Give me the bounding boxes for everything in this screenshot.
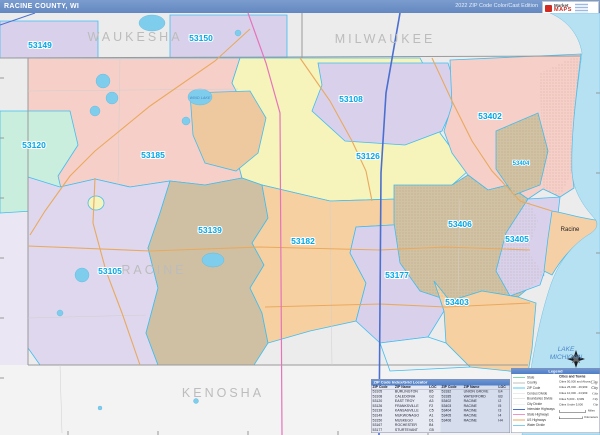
zip-label-53139: 53139: [198, 225, 222, 235]
map-page: RACINE COUNTY, WI 2022 ZIP Code Color/Ca…: [0, 0, 600, 435]
cities-and-towns-heading: Cities and Towns: [559, 375, 598, 379]
legend-swatch: [513, 409, 525, 410]
city-class-label: Cities 50,000 and Above: [559, 380, 590, 383]
city-symbol: City: [592, 391, 598, 395]
kenosha-county-area: [0, 365, 600, 435]
miles-bar: [559, 410, 586, 413]
zip-label-53185: 53185: [141, 150, 165, 160]
header-bar: RACINE COUNTY, WI 2022 ZIP Code Color/Ca…: [0, 0, 600, 13]
legend-swatch: [513, 393, 525, 394]
legend-item-label: City Divide: [527, 402, 542, 406]
wind-lake-label: WIND LAKE: [190, 96, 211, 100]
legend-item-label: State: [527, 376, 534, 380]
legend-line-items: StateCountyZIP CodeCensus DivideBoundari…: [513, 375, 559, 428]
zip-index-right-half: ZIP Code ZIP Name LOC 53182UNION GROVEE4…: [441, 386, 510, 433]
zip-label-53403: 53403: [445, 297, 469, 307]
table-row: 53177STURTEVANTG5: [372, 428, 441, 433]
zip-label-53105: 53105: [98, 266, 122, 276]
legend-swatch: [513, 420, 525, 421]
legend-item-label: US Highways: [527, 418, 546, 422]
zip-label-53108: 53108: [339, 94, 363, 104]
lake-label-line2: MICHIGAN: [550, 354, 583, 361]
county-label-milwaukee: MILWAUKEE: [335, 32, 436, 46]
table-cell: G5: [428, 428, 440, 433]
legend-item-label: County: [527, 381, 537, 385]
zip-label-53177: 53177: [385, 270, 409, 280]
legend-item-label: Census Divide: [527, 392, 547, 396]
scale-bar-kilometers: Kilometers: [559, 414, 598, 421]
county-label-racine: RACINE: [121, 263, 186, 277]
table-cell: 53177: [372, 428, 394, 433]
logo-flag-icon: [545, 5, 552, 12]
legend-item-label: State Highways: [527, 413, 549, 417]
kilometers-bar: [559, 416, 582, 419]
city-class-label: Cities 5,000 - 9,999: [559, 398, 584, 401]
miles-label: Miles: [588, 410, 595, 413]
table-cell: 53406: [441, 418, 463, 423]
zip-label-53406: 53406: [448, 219, 472, 229]
zip-index-table: ZIP Code Index/Grid Locator ZIP Code ZIP…: [371, 379, 510, 433]
zip-index-left-half: ZIP Code ZIP Name LOC 53105BURLINGTONB55…: [372, 386, 441, 433]
legend-cities-column: Cities and Towns Cities 50,000 and Above…: [559, 375, 598, 428]
legend-item: Water Divide: [513, 423, 559, 428]
zip-label-53150: 53150: [189, 33, 213, 43]
zip-label-53404: 53404: [513, 161, 530, 167]
legend-item-label: Water Divide: [527, 424, 545, 428]
legend-item-label: ZIP Code: [527, 386, 540, 390]
city-class-label: Cities 10,000 - 24,999: [559, 392, 587, 395]
zip-region-53150: [170, 15, 287, 58]
legend-swatch: [513, 388, 525, 389]
page-title: RACINE COUNTY, WI: [4, 3, 79, 10]
table-cell: RACINE: [463, 418, 498, 423]
zip-label-53402: 53402: [478, 111, 502, 121]
zip-label-53405: 53405: [505, 234, 529, 244]
zip-label-53182: 53182: [291, 236, 315, 246]
county-label-waukesha: WAUKESHA: [87, 30, 182, 44]
edition-label: 2022 ZIP Code Color/Cast Edition: [455, 3, 538, 9]
legend-swatch: [513, 404, 525, 405]
city-symbol: City: [591, 379, 599, 384]
kilometers-label: Kilometers: [584, 416, 598, 419]
zip-region-53167: [88, 196, 104, 210]
legend-swatch: [513, 425, 525, 426]
legend-swatch: [513, 399, 525, 400]
table-cell: STURTEVANT: [394, 428, 428, 433]
city-symbol: City: [593, 404, 598, 407]
county-map: WAUKESHA MILWAUKEE RACINE KENOSHA LAKE M…: [0, 13, 600, 435]
walworth-edge-area: [0, 213, 28, 365]
lake-label-line1: LAKE: [558, 346, 575, 353]
legend-swatch: [513, 414, 525, 415]
city-class-label: Cities Under 5,000: [559, 404, 583, 407]
city-label-racine: Racine: [561, 227, 580, 233]
map-legend: Legend StateCountyZIP CodeCensus DivideB…: [511, 368, 600, 433]
legend-swatch: [513, 382, 525, 383]
legend-swatch: [513, 377, 525, 378]
city-class-label: Cities 25,000 - 49,999: [559, 386, 587, 389]
table-cell: H4: [497, 418, 509, 423]
city-symbol: City: [591, 385, 598, 390]
zip-label-53126: 53126: [356, 151, 380, 161]
zip-label-53120: 53120: [22, 140, 46, 150]
legend-item-label: Interstate Highways: [527, 408, 555, 412]
city-symbol: City: [593, 398, 598, 402]
legend-item-label: Boundaries Divide: [527, 397, 553, 401]
table-row: 53406RACINEH4: [441, 418, 510, 423]
county-label-kenosha: KENOSHA: [182, 386, 264, 400]
zip-label-53149: 53149: [28, 40, 52, 50]
